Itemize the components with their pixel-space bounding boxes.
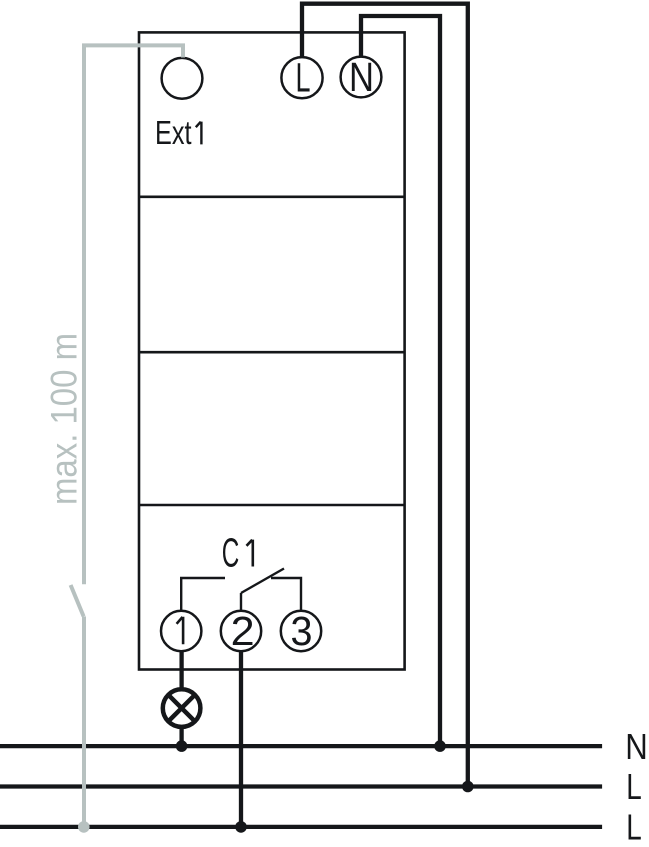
svg-text:L: L — [626, 766, 642, 807]
svg-text:2: 2 — [231, 608, 255, 654]
svg-text:max. 100 m: max. 100 m — [44, 333, 85, 505]
svg-text:N: N — [349, 54, 374, 100]
svg-text:N: N — [625, 726, 648, 767]
svg-text:Ext: Ext — [155, 115, 192, 152]
svg-text:L: L — [296, 55, 311, 101]
svg-text:C: C — [222, 529, 240, 575]
svg-text:3: 3 — [291, 608, 313, 654]
svg-text:L: L — [626, 806, 642, 847]
